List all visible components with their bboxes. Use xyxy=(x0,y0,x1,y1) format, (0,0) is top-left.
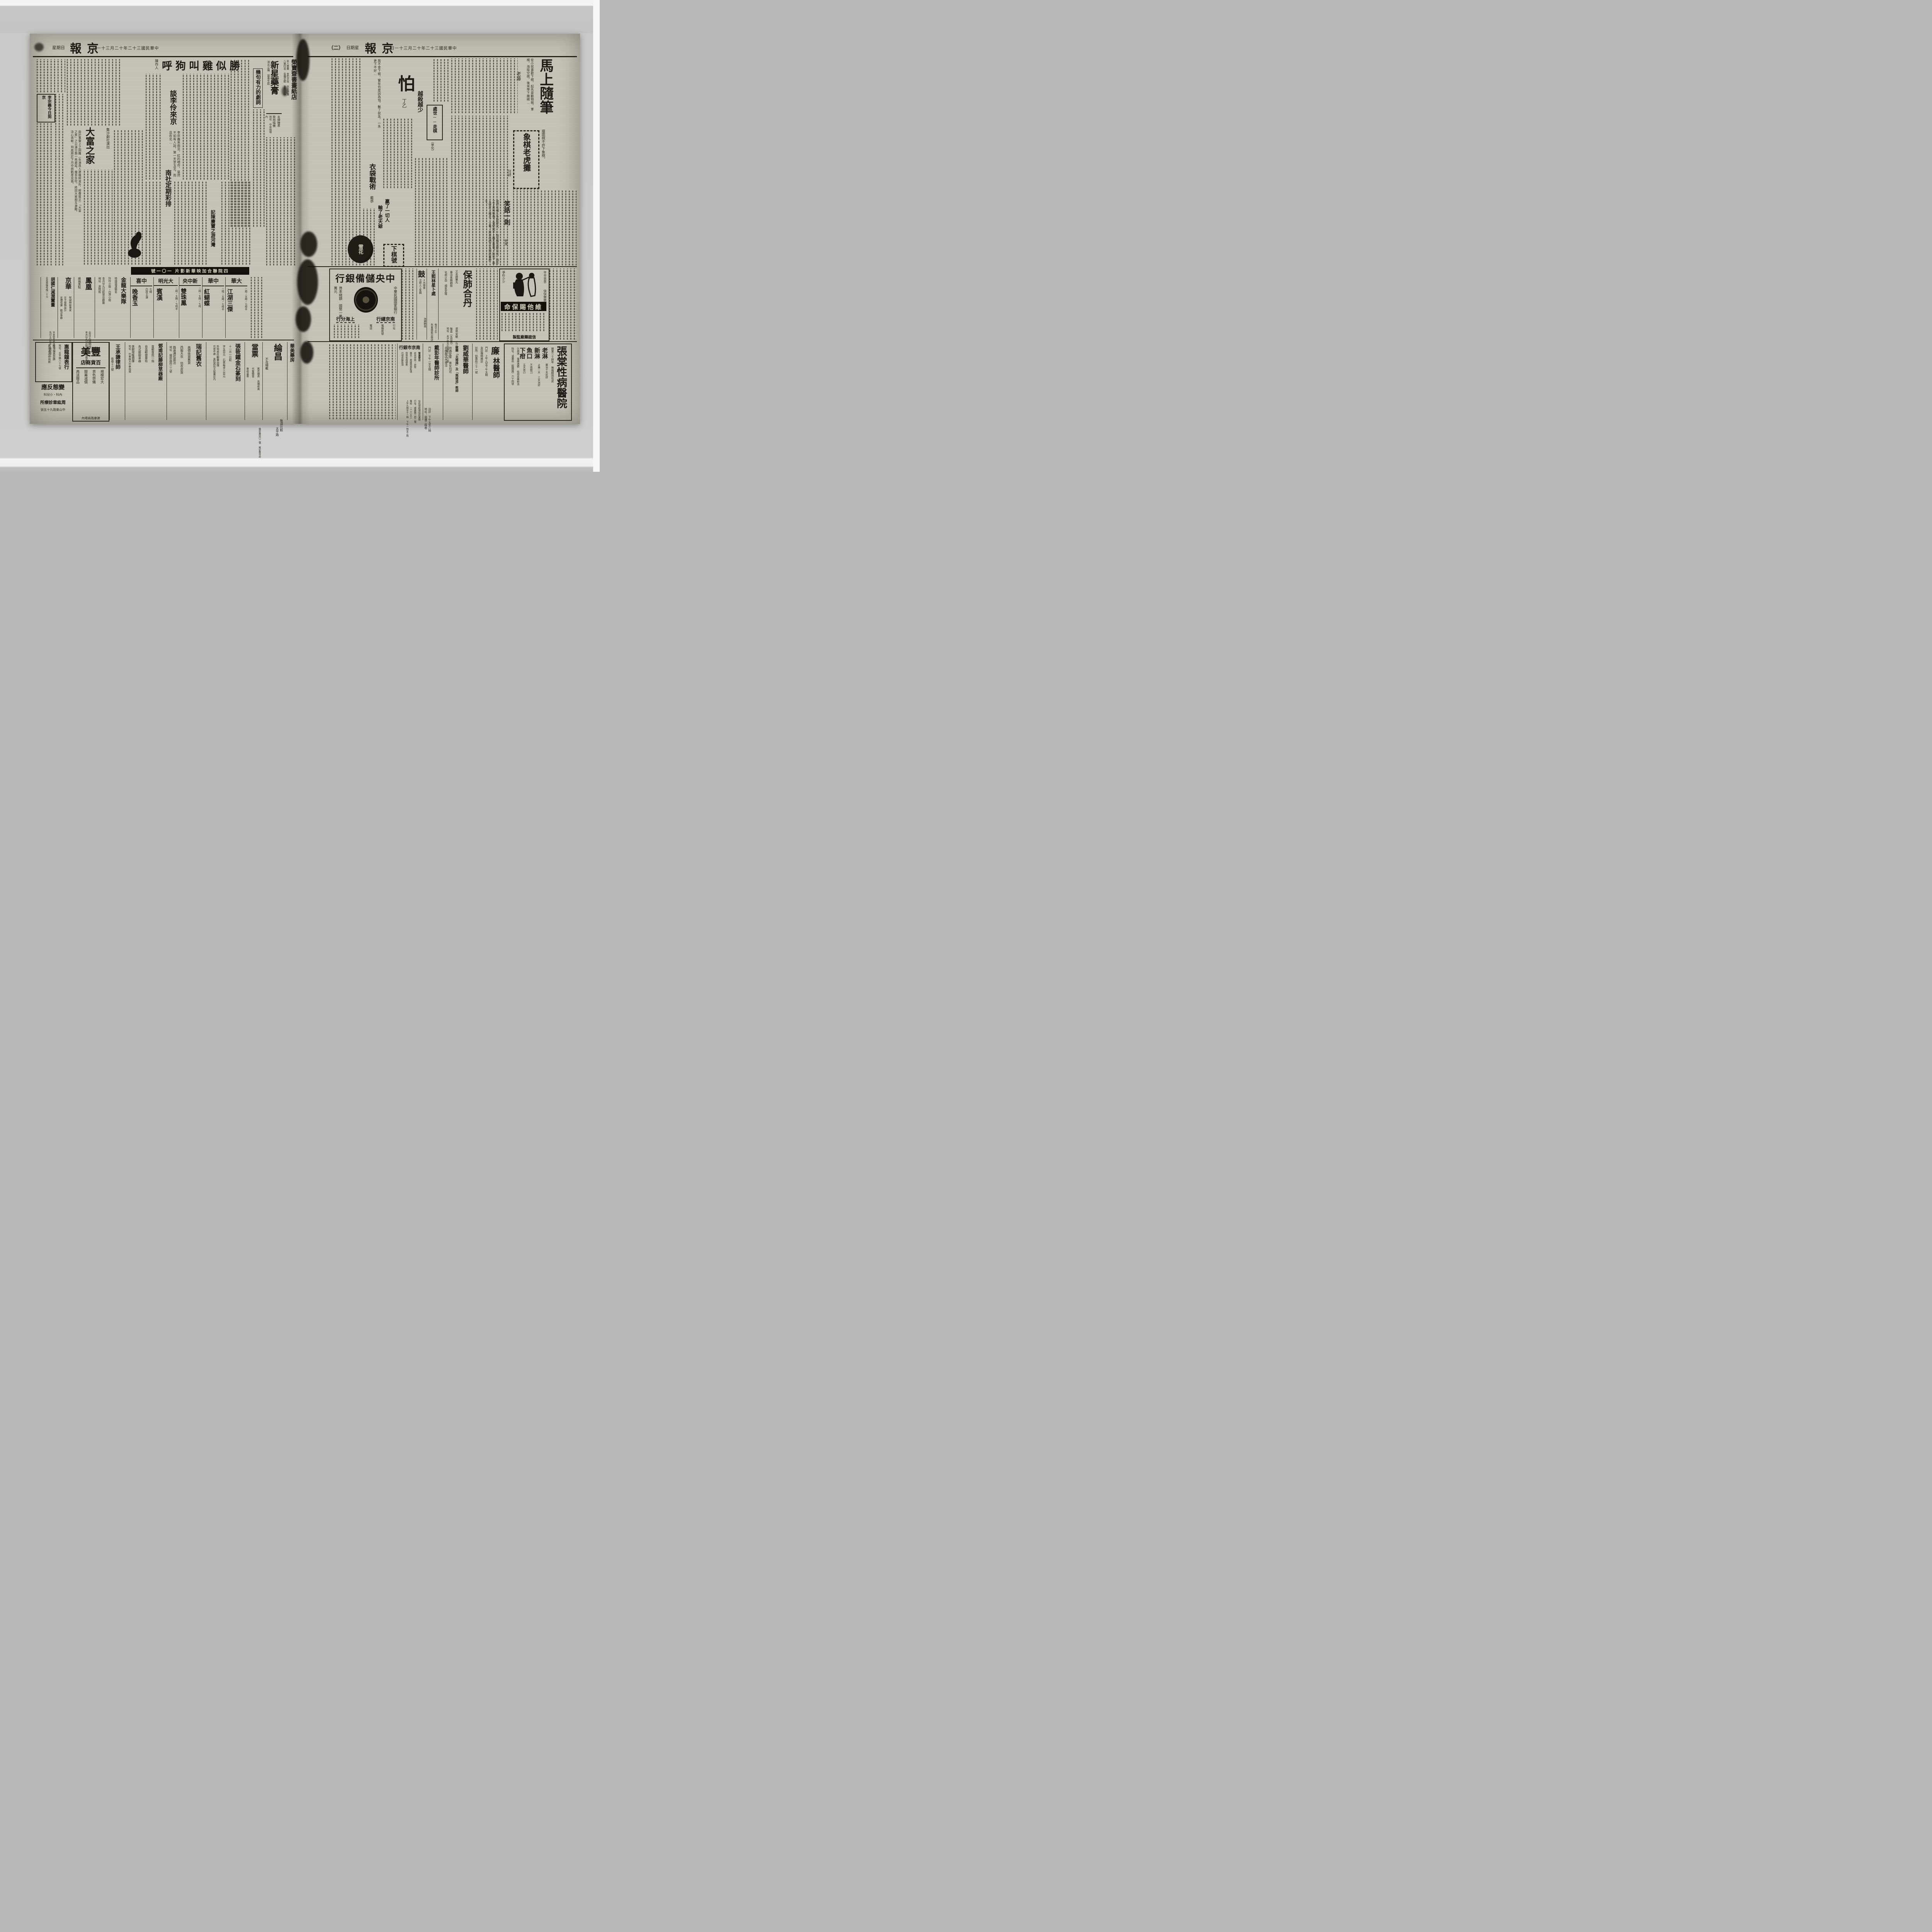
theater-name: 喜中 xyxy=(131,277,152,286)
ad-ruiji-line: 高價收買舊貨 xyxy=(187,346,191,404)
ad-feihe: 保肺合丹 又名肺藥丸 專治各期肺癆 化痰止血 順氣定喘 退熱安眠 止汗健胃 每盒… xyxy=(438,269,475,340)
article-yidai-title: 衣袋戰術 xyxy=(367,163,377,194)
theater-zhongxi: 喜中 七時 白玫主演 晚香玉 xyxy=(130,277,152,338)
ad-zhouhongzhang: 應反態變 科兒小・科內 所療診章紘周 號五十九路東山中 xyxy=(35,383,71,420)
ad-dangpiao-line: 舊衣鐘表 高價收買 xyxy=(256,367,260,425)
ad-fenghuang: 鳳凰 維揚美點 全日火鍋開放 本月廿九日起早茶市供應名點 xyxy=(74,277,94,338)
article-xiangqi-title: 象棋老虎攤 xyxy=(521,133,532,185)
ad-jinlong: 金龍大樂隊 特請滬漢馳名 玲玲小姐・白萍小姐 本月廿九日起登台獻藝 地址 貢院街 xyxy=(95,277,129,338)
article-xiaqihao-title: 下棋號 xyxy=(390,246,398,264)
ad-daipengnian-line: 門診 下午一至五時 xyxy=(427,347,431,405)
theater-name: 明光大 xyxy=(154,277,178,286)
ad-nanshi-line: 電話 二二八五三 xyxy=(409,400,412,446)
ad-nanshi-line: 信託部經理信託業務 xyxy=(417,400,421,446)
ad-dangpiao-line: 國府路四〇二號 維記舊貨店 xyxy=(258,428,261,472)
ad-gulou: 鼓 Ｘ光檢查 注射人工氣胸 治療肺病 xyxy=(417,269,426,340)
ad-wangchengqian-title: 王承謙律師 xyxy=(114,344,121,395)
ad-ruiji-title: 瑞記舊衣 xyxy=(194,344,202,378)
ad-fenghuang-line: 維揚美點 xyxy=(77,277,82,331)
ad-dengfuji: 鄧甫記藤柳草器廠 首都首屈一指 自造輕便華毯 各式籐柳草器 美觀增暖價廉 地址 … xyxy=(125,342,165,420)
article-dafu-excerpt: 由於事實上之困難（女演員人選幾經波折，經費貧乏）「大富之家」之公演日期一再遲延，… xyxy=(67,130,82,215)
ad-linyishi-line: 門診 上午九至下午五時 xyxy=(484,347,488,408)
ink-smudge xyxy=(297,259,318,305)
ad-meifeng-sub: 店商貨百 xyxy=(73,359,109,366)
ad-zhouhongzhang-title: 應反態變 xyxy=(35,383,71,391)
article-pa-author: 丁乙 xyxy=(401,99,408,113)
ad-dengfuji-line: 自造輕便華毯 xyxy=(144,345,148,403)
ad-nanshi-line: 收受存款・放款 xyxy=(413,352,417,398)
ad-weita: 辛辛苦苦 快快樂樂 爭吵少少 命保賜他維 製監廠藥誼信 xyxy=(499,269,549,341)
ad-ccb-branch2: 行分海上 xyxy=(336,316,355,323)
illegible-text-block xyxy=(183,74,229,180)
theater-times: 二時・五時・七時半 xyxy=(220,288,224,321)
ad-huguoren-line: 花鳥條幅每幅一千元 xyxy=(45,277,48,331)
ad-jinlong-line: 特請滬漢馳名 xyxy=(114,277,117,331)
ad-jinlong-title: 金龍大樂隊 xyxy=(120,277,128,335)
theater-name: 華大 xyxy=(226,277,247,286)
ad-jinghua: 京華 呢絨時裝專家 女子服飾設計 定價低廉 歡迎參觀 xyxy=(58,277,73,338)
theater-banner: 號一〇一 片影新華映加合聯院四 xyxy=(131,267,249,275)
bank-emblem xyxy=(354,287,378,313)
ad-ccb-label: 行址 xyxy=(392,324,396,338)
masthead-rule-left xyxy=(33,56,293,57)
illegible-text-block xyxy=(253,109,265,227)
ad-nanshi-line: 代理收解款項 xyxy=(400,352,404,398)
article-sheng-author: 陳作人 xyxy=(154,59,159,75)
ad-weita-slogan: 辛辛苦苦 xyxy=(543,271,547,288)
ad-ccb-branch1: 行總京南 xyxy=(376,316,395,323)
ad-zhouhongzhang-line: 科兒小・科內 xyxy=(35,393,71,397)
illegible-text-block xyxy=(84,170,112,265)
ad-ccb-title: 行銀備儲央中 xyxy=(330,271,401,284)
illegible-text-block xyxy=(383,119,413,188)
ad-linyishi-big: 廉 xyxy=(491,344,500,357)
ad-huilong: 惠龍鐘表行 地址：太平路八十七號 修理鐘表首飾 舊壞表改修如新 xyxy=(35,342,72,382)
ad-ccb-label: 電報掛號 xyxy=(380,324,384,338)
ad-linyishi-title: 林醫師 xyxy=(491,357,501,396)
ad-dengfuji-title: 鄧甫記藤柳草器廠 xyxy=(157,344,164,417)
ad-meifeng-line: 內場商路康建 xyxy=(73,416,109,420)
weekday-left: 星期日 xyxy=(52,44,65,51)
illegible-text-block xyxy=(402,269,415,340)
ad-lunchang: 綸昌 不及細載 敬請比較 太平路 xyxy=(262,342,286,420)
ink-smudge xyxy=(300,231,317,257)
ad-wangxilin-title: 王熙林星卜處 xyxy=(430,270,436,320)
ad-huilong-line: 舊壞表改修如新 xyxy=(47,344,51,378)
ad-linyishi-line: 急診隨時應診 xyxy=(480,347,483,408)
ad-zhangxiaotie-line: 外埠來件郵費自理 xyxy=(216,345,219,403)
article-xiaohua-title: 笑話一則 xyxy=(502,201,511,236)
ad-meifeng-title: 美豐 xyxy=(73,344,109,359)
ad-feihe-title: 保肺合丹 xyxy=(460,270,473,328)
article-ying-title-1: 贏了一切人 xyxy=(384,199,391,226)
theater-name: 央中新 xyxy=(179,277,201,286)
illegible-text-block xyxy=(451,58,518,113)
ad-wangchengqian-line: 衛巷十三號 xyxy=(110,357,114,404)
illegible-text-block xyxy=(549,269,577,340)
article-tanli-title: 談李伶來京 xyxy=(168,90,178,129)
ad-liuweihua-line: 花園飯店內接洽 xyxy=(444,347,448,405)
ad-nanshi-line: 行址：建康路二四二號 xyxy=(413,400,417,446)
ad-liuweihua-line: 欲聘「太極操」及「無極道」教師 xyxy=(455,346,459,415)
ad-zhangxiaotie-line: 十一月一日起 xyxy=(228,345,232,403)
ad-wangxilin: 王熙林星卜處 每日上午 朱雀路新亞飯店 xyxy=(427,269,437,340)
illegible-text-block xyxy=(37,123,54,265)
ad-liuweihua-title: 劉威華醫師 xyxy=(461,345,469,403)
dateline-right: 日一十三月二十年二十三國民華中 xyxy=(390,45,457,51)
ad-gulou-line: 治療肺病 xyxy=(422,318,426,341)
ad-gelin-line: 名牌鐘表 xyxy=(277,116,281,134)
ad-huilong-line: 修理鐘表首飾 xyxy=(52,344,56,378)
article-dafu-kicker: 集沙劇社演出 xyxy=(105,128,111,155)
illegible-text-block xyxy=(221,181,252,265)
illegible-text-block xyxy=(37,59,65,92)
newspaper-spread: 星期日 報京 日一十三月二十年二十三國民華中 榮寶齋書畫紙店 名人書畫 金石文玩… xyxy=(30,34,580,424)
theater-times: 二時・五時・七時半 xyxy=(174,287,178,321)
illegible-text-block xyxy=(332,58,362,265)
article-lizongyi-title: 李宗義今日到京 xyxy=(40,95,52,120)
ad-nanshi-line: 上午九時至十二時 下午一時至三時 xyxy=(405,400,409,462)
theater-zhonghua: 華中 二時・五時・七時半 紅蝴蝶 xyxy=(202,277,224,338)
ad-feihe-line: 專治各期肺癆 xyxy=(449,271,453,325)
ad-zhangxiaotie-line: 代收件處 貢院西街大陸藥房內 xyxy=(212,345,216,411)
theater-times: 二時・五時・七時半 xyxy=(243,288,247,321)
ad-lunchang-line: 不及細載 xyxy=(265,357,269,404)
theater-cast: 白玫主演 xyxy=(145,288,148,311)
illegible-text-block xyxy=(174,181,208,265)
ad-zhouhongzhang-line: 號五十九路東山中 xyxy=(35,408,71,412)
masthead-rule-right xyxy=(308,56,577,57)
ad-xinxing-slogan: 消炎止痛 拔毒生肌 xyxy=(266,61,270,103)
illegible-text-block xyxy=(251,277,265,338)
ad-feihe-alt: 又名肺藥丸 xyxy=(454,270,458,297)
article-pa-title: 怕 xyxy=(398,70,415,95)
theater-daguangming: 明光大 二時・五時・七時半 賓漢 xyxy=(153,277,178,338)
ad-jinghua-title: 京華 xyxy=(63,277,72,296)
ad-zhangtang: 張棠性病醫院 開業二十餘年 無痛精割包皮 老淋 藥治十天痊好 新淋 止痛一天 三… xyxy=(504,344,572,421)
ad-daipengnian-title: 戴彭年醫師診所 xyxy=(433,345,440,415)
article-ying-title-2: 輸了老天爺 xyxy=(377,205,384,232)
ad-lunchang-line: 太平路 xyxy=(275,427,279,472)
illegible-text-block xyxy=(476,269,498,340)
ad-dengfuji-line: 地址 中華路大中華商場 xyxy=(127,345,131,411)
ad-dangpiao: 當票 舊衣鐘表 高價收買 代客贖當 專收當票 國府路四〇二號 維記舊貨店 xyxy=(245,342,261,420)
ad-zhangxiaotie-line: 字五百元 石質每字三百元 xyxy=(222,345,226,403)
ad-wangchengqian: 王承謙律師 衛巷十三號 xyxy=(109,342,124,420)
ad-fenghuang-title: 鳳凰 xyxy=(83,277,93,300)
illegible-text-block xyxy=(146,74,161,180)
ad-xinxing: 新星藥膏 消炎止痛 拔毒生肌 名牌鐘表 歌林唱機 地址 中央商場內 xyxy=(266,59,282,135)
page-left: 星期日 報京 日一十三月二十年二十三國民華中 榮寶齋書畫紙店 名人書畫 金石文玩… xyxy=(30,34,297,424)
ad-nanshi-line: 買賣有價證券 xyxy=(405,352,408,398)
ad-lunchang-title: 綸昌 xyxy=(271,344,284,371)
ad-dengfuji-line: 各式籐柳草器 xyxy=(138,345,142,403)
ad-dangpiao-line: 專收當票 xyxy=(245,367,249,425)
illegible-text-block xyxy=(513,189,539,265)
ad-weita-maker: 製監廠藥誼信 xyxy=(500,334,549,340)
ad-ruiji-line: 地址 國府路四二二號 xyxy=(168,346,172,412)
article-jichen-title: 記陳賡寶之游河灣 xyxy=(210,210,216,258)
dateline-left: 日一十三月二十年二十三國民華中 xyxy=(92,45,159,51)
weekday-right: 日期星 xyxy=(346,44,359,51)
article-chushi-box: 處世──走棋 xyxy=(427,105,443,140)
ad-gulou-line: Ｘ光檢查 xyxy=(422,279,425,310)
ad-jinlong-line: 本月廿九日起登台獻藝 xyxy=(101,277,105,331)
center-fold xyxy=(292,34,310,424)
ad-zhangxiaotie-title: 張筱鐵金石篆刻 xyxy=(234,344,242,417)
theater-film: 江湖三傑 xyxy=(226,289,234,335)
ad-huguoren-title: 胡國仁減潤鬻畫 xyxy=(49,277,56,320)
ad-zhangtang-head: 老淋 xyxy=(541,347,549,361)
page-right: （二） 日期星 報京 日一十三月二十年二十三國民華中 馬上隨筆 老藤 從小就喜歡… xyxy=(304,34,580,424)
ad-dengfuji-line: 美觀增暖價廉 xyxy=(131,345,135,403)
ink-smudge xyxy=(34,43,44,51)
illegible-text-block xyxy=(67,59,121,126)
ad-zhangtang-head: 魚口 xyxy=(525,347,533,361)
ad-nanshi-line: 營業要目 xyxy=(417,352,421,367)
page-marker: （二） xyxy=(328,44,344,51)
article-mashang-note: 擺圍棋不許下象棋。 xyxy=(541,129,546,187)
ad-gulou-big: 鼓 xyxy=(417,269,426,279)
ad-zhangtang-line: 不用開刀 xyxy=(529,364,532,395)
theater-film: 晚香玉 xyxy=(131,289,139,335)
ad-zhangtang-title: 張棠性病醫院 xyxy=(554,346,569,418)
illegible-text-block xyxy=(415,157,450,265)
ad-zhangtang-head: 下疳 xyxy=(518,347,526,361)
ad-ccb: 行銀備儲央中 中華民國國家銀行 資本總額 國幣一萬萬元 行總京南 行分海上 行址… xyxy=(329,269,402,341)
gramophone-cartoon xyxy=(125,229,144,259)
ad-daipengnian-line: 地址：鼓樓二條巷 xyxy=(423,408,427,472)
ad-ruiji-line: 西服大衣 估衣皮貨 xyxy=(180,346,184,404)
ad-ruiji-line: 路遠通信面洽 xyxy=(172,346,177,404)
ad-zhangtang-line: 久病淋 電療透膜 佐用良藥根治 xyxy=(515,347,519,417)
ad-ruiji: 瑞記舊衣 高價收買舊貨 西服大衣 估衣皮貨 路遠通信面洽 地址 國府路四二二號 xyxy=(167,342,205,420)
illegible-text-block xyxy=(334,324,361,338)
ad-rongbaozhai-line: 八寶印泥 各種宣紙 喜壽屏聯 xyxy=(282,60,286,106)
theater-dahua: 華大 二時・五時・七時半 江湖三傑 xyxy=(225,277,247,338)
article-sheng-headline: 呼狗叫雞似勝 xyxy=(162,58,243,73)
ad-meifeng-line: 貨色齊備 xyxy=(92,370,97,397)
ad-zhangtang-line: 開業二十餘年 無痛精割包皮 xyxy=(550,347,554,405)
ink-smudge xyxy=(300,341,313,364)
ad-dangpiao-line: 代客贖當 xyxy=(250,367,254,425)
ink-smudge xyxy=(282,86,288,96)
article-pa-excerpt: 我不會下棋，實在也是因為怕，輸了就急，一急更下不好… xyxy=(364,59,381,129)
ad-zhangtang-line: 止痛一天 三天治好 xyxy=(536,364,540,402)
ad-gelin-line: 歌林唱機 xyxy=(272,116,276,134)
article-chushi-title: 處世──走棋 xyxy=(432,107,438,138)
ink-smudge xyxy=(296,306,311,332)
ad-zhangtang-line: 五天收口 xyxy=(522,364,526,395)
illegible-text-block xyxy=(329,344,396,419)
ad-feihe-line: 化痰止血 順氣定喘 xyxy=(444,271,447,325)
ad-zhangtang-head: 新淋 xyxy=(533,347,541,361)
ad-gulou-line: 注射人工氣胸 xyxy=(418,279,422,318)
article-lizongyi-box: 李宗義今日到京 xyxy=(37,94,55,122)
ad-wangxilin-line: 每日上午 xyxy=(433,323,437,347)
ad-zhangxiaotie: 張筱鐵金石篆刻 十一月一日起 字五百元 石質每字三百元 外埠來件郵費自理 代收件… xyxy=(206,342,243,420)
theater-times: 二時・五時・七時 xyxy=(197,287,201,321)
ad-liuweihua: 劉威華醫師 欲聘「太極操」及「無極道」教師 待遇從豐 男女均可 花園飯店內接洽 xyxy=(443,344,471,420)
theater-times: 七時 xyxy=(148,288,152,303)
ad-meifeng-line: 再送贈品 xyxy=(75,370,80,397)
ad-dangpiao-title: 當票 xyxy=(250,344,260,365)
ink-smudge xyxy=(296,39,310,81)
ad-weita-banner: 命保賜他維 xyxy=(501,302,546,311)
ad-huilong-title: 惠龍鐘表行 xyxy=(63,344,70,379)
illegible-text-block xyxy=(541,190,577,265)
article-mashang-title: 馬上隨筆 xyxy=(536,58,556,115)
ad-linyishi-line: 診所：鈔庫街三十一號 xyxy=(474,347,478,416)
theater-xinzhongyang: 央中新 二時・五時・七時 雙珠鳳 xyxy=(179,277,201,338)
ad-huguoren: 胡國仁減潤鬻畫 花鳥條幅每幅一千元 中堂依屏條加倍 先付五日取件 隨封加二 xyxy=(41,277,56,338)
ad-ccb-capital: 資本總額 國幣一萬萬元 xyxy=(333,286,343,320)
ad-jinlong-line: 玲玲小姐・白萍小姐 xyxy=(107,277,111,331)
scanner-edge-strip xyxy=(593,0,600,472)
article-xiangqi-box: 象棋老虎攤 xyxy=(513,130,539,189)
theater-film: 雙珠鳳 xyxy=(179,288,187,335)
theater-film: 賓漢 xyxy=(154,288,163,335)
ad-zhangtang-line: 院址：道署街（臨園路）六十四號 xyxy=(510,347,514,417)
ad-ccb-subtitle: 中華民國國家銀行 xyxy=(393,286,398,320)
article-dafu-title: 大富之家 xyxy=(82,127,96,168)
illegible-text-block xyxy=(434,58,450,102)
couple-cartoon xyxy=(508,271,541,300)
article-mashang-excerpt: 從小就喜歡下棋，起先是動物棋，軍棋，海陸空棋，後來學下圍棋… xyxy=(521,58,534,113)
ad-daipengnian: 戴彭年醫師診所 門診 下午一至五時 出診 下午五至八時 地址：鼓樓二條巷 xyxy=(423,344,442,420)
newspaper-scan: 星期日 報京 日一十三月二十年二十三國民華中 榮寶齋書畫紙店 名人書畫 金石文玩… xyxy=(0,0,600,472)
ad-jinlong-line: 地址 貢院街 xyxy=(97,277,101,331)
ad-weita-slogan: 爭吵少少 xyxy=(502,271,506,288)
theater-film: 紅蝴蝶 xyxy=(202,289,211,335)
ad-ccb-label: 電話 xyxy=(369,324,372,338)
article-juju-title: 幾句有力的劇詞 xyxy=(253,68,263,108)
ad-gelin-line: 地址 中央商場內 xyxy=(264,116,272,134)
ad-huilong-line: 地址：太平路八十七號 xyxy=(57,344,61,378)
ad-lunchang-line: 敬請比較 xyxy=(279,419,284,466)
ad-zhouhongzhang-line: 所療診章紘周 xyxy=(35,399,71,405)
ad-nanshi-title: 行銀市京南 xyxy=(398,344,422,350)
xuehua-stamp-text: 雪花 xyxy=(357,244,364,254)
ad-nanshi: 行銀市京南 營業要目 收受存款・放款 匯兌・票據買賣貼現 買賣有價證券 代理收解… xyxy=(397,344,422,420)
article-yuesha-title: 越殺越少 xyxy=(417,91,424,116)
article-xiaohua-author: 老身 xyxy=(504,239,508,248)
xuehua-stamp: 雪花 xyxy=(348,235,373,263)
ad-liuweihua-line: 待遇從豐 男女均可 xyxy=(448,347,452,405)
article-chushi-author: （草化） xyxy=(430,140,435,156)
ad-dengfuji-line: 首都首屈一指 xyxy=(151,345,155,403)
ad-meifeng: 美豐 店商貨百 規模宏大 貨色齊備 開幕減價 再送贈品 內場商路康建 xyxy=(72,342,109,422)
ad-meifeng-line: 規模宏大 xyxy=(100,370,105,397)
illegible-text-block xyxy=(55,94,65,265)
ad-nanshi-line: 匯兌・票據買賣貼現 xyxy=(409,352,412,398)
article-xiaqihao-box: 下棋號 xyxy=(383,244,404,267)
ad-daipengnian-line: 出診 下午五至八時 xyxy=(427,408,431,466)
article-xiaohua-excerpt: 他們在樓上多麼斯文，一點兒聲音都沒有，相形之下真夠慚愧！我們何不上樓去看看？說完… xyxy=(471,200,499,265)
ad-linyishi: 廉 林醫師 門診 上午九至下午五時 急診隨時應診 診所：鈔庫街三十一號 xyxy=(472,344,503,420)
article-yidai-author: 戴恭 xyxy=(369,196,374,206)
illegible-text-block xyxy=(502,313,546,331)
ad-zhangtang-line: 藥治十天痊好 xyxy=(544,364,548,398)
theater-name: 華中 xyxy=(202,277,224,286)
ad-meifeng-line: 開幕減價 xyxy=(83,370,88,397)
article-nanshe-title: 南社定期彩排 xyxy=(163,170,172,217)
illegible-text-block xyxy=(146,181,161,265)
